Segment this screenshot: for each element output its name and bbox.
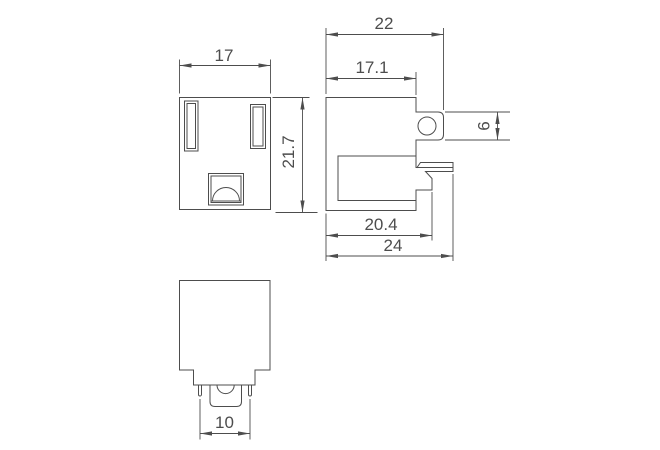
- side-lower-recess: [338, 156, 416, 201]
- side-view: [326, 98, 453, 211]
- technical-drawing-canvas: 17 21.7 22 17.1 6 20.4: [0, 0, 660, 450]
- bottom-view: [180, 281, 271, 407]
- front-ground-opening-outer: [209, 174, 244, 206]
- bottom-center-dome-arc: [217, 385, 234, 394]
- dim-front-height-label: 21.7: [279, 135, 298, 168]
- dim-side-tab-height-label: 6: [475, 121, 494, 130]
- front-right-slot-inner: [253, 107, 263, 146]
- side-body-outline: [326, 98, 416, 211]
- dim-bottom-pin-spacing-label: 10: [215, 413, 234, 432]
- front-ground-opening-inner: [211, 176, 241, 203]
- dim-bottom-pin-spacing: 10: [200, 399, 250, 440]
- bottom-right-pin: [249, 385, 252, 396]
- dim-side-overall-depth-label: 24: [384, 236, 403, 255]
- bottom-body-outline: [180, 281, 271, 386]
- dim-side-overall-width-label: 22: [375, 14, 394, 33]
- drawing-stage: 17 21.7 22 17.1 6 20.4: [0, 0, 660, 450]
- side-mount-hole: [418, 117, 436, 135]
- front-body-outline: [180, 98, 271, 210]
- dim-side-body-depth-label: 20.4: [364, 215, 397, 234]
- bottom-left-pin: [199, 385, 202, 396]
- dim-front-width-label: 17: [215, 46, 234, 65]
- dim-front-height: 21.7: [273, 98, 318, 213]
- dim-side-body-width-label: 17.1: [355, 58, 388, 77]
- dim-side-tab-height: 6: [445, 112, 510, 140]
- dim-front-width: 17: [180, 46, 271, 94]
- front-ground-dome-arc: [213, 188, 240, 202]
- side-mount-tab: [416, 112, 444, 140]
- bottom-center-tab: [210, 385, 242, 407]
- dim-side-body-width: 17.1: [326, 58, 416, 95]
- side-terminal-blade: [416, 163, 453, 191]
- front-view: [180, 98, 271, 210]
- front-left-slot-inner: [187, 104, 196, 149]
